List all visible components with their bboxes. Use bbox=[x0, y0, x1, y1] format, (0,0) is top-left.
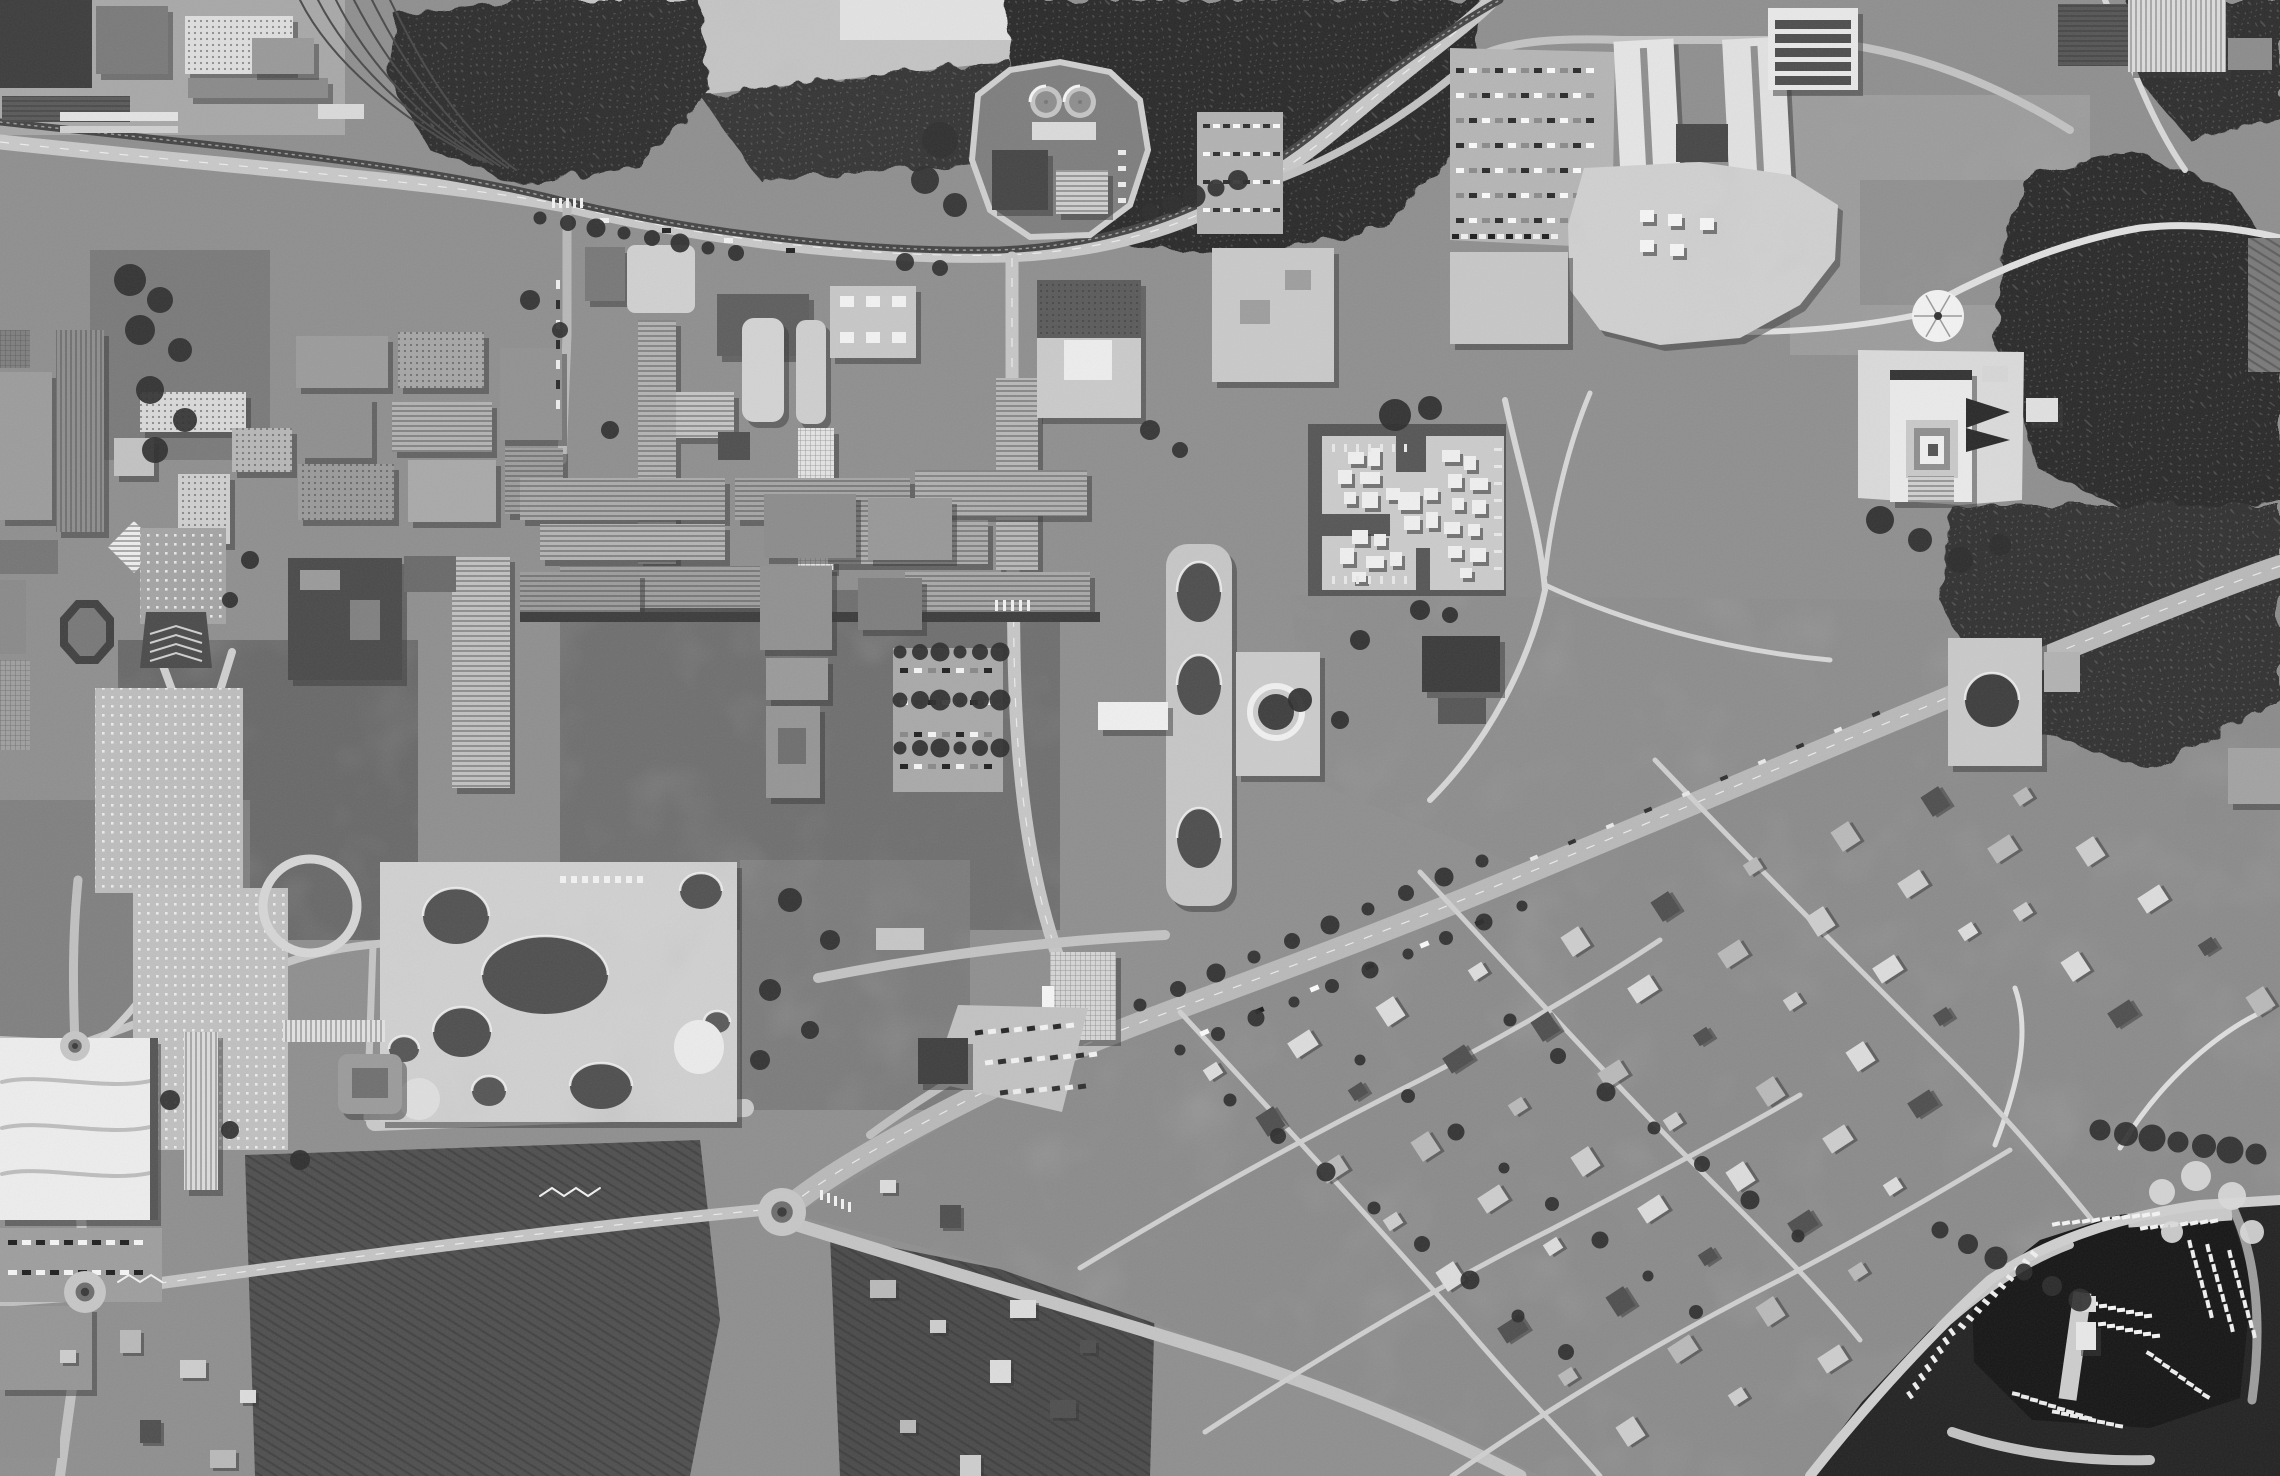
film-grain-overlay bbox=[0, 0, 2280, 1476]
aerial-photo-scene bbox=[0, 0, 2280, 1476]
aerial-photo-canvas bbox=[0, 0, 2280, 1476]
